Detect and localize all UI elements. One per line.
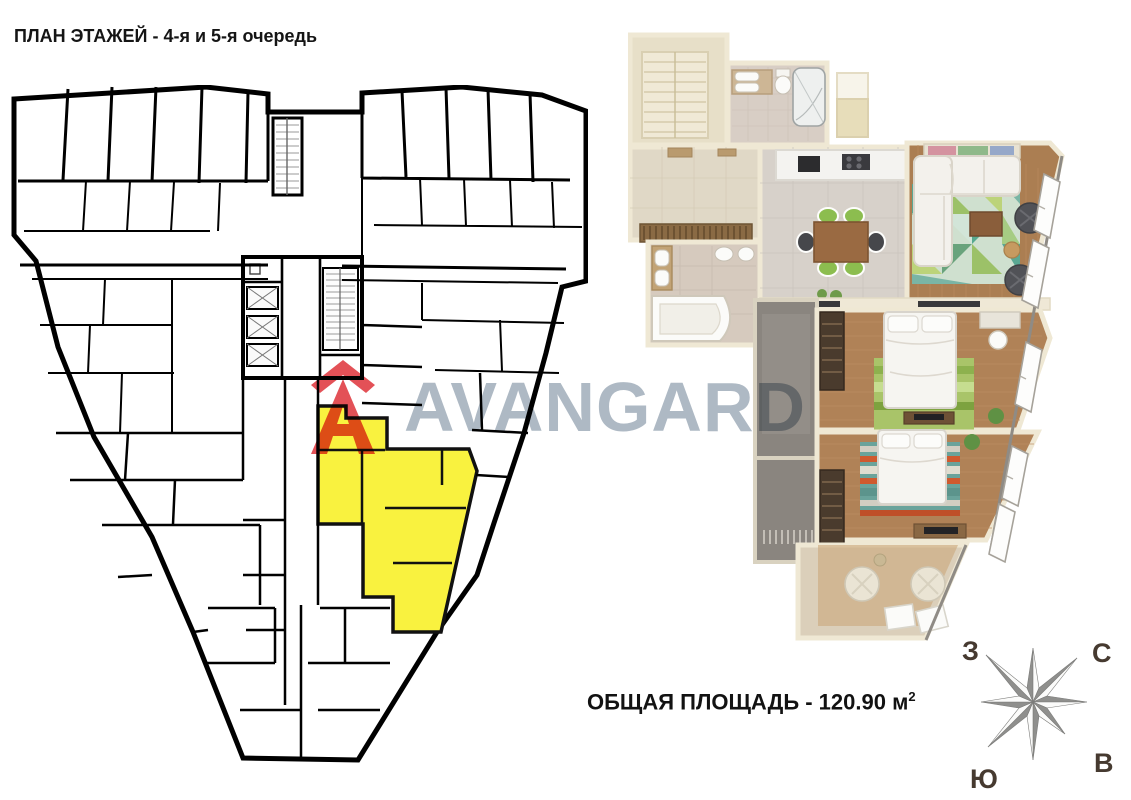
dining-table — [814, 222, 868, 262]
room-terrace — [798, 545, 966, 638]
plant — [964, 434, 980, 450]
small-table — [874, 554, 886, 566]
stair-shaft-top — [273, 118, 302, 195]
room-hallway — [630, 147, 760, 242]
total-area-label: ОБЩАЯ ПЛОЩАДЬ - 120.90 м2 — [587, 689, 916, 715]
seat-white — [885, 604, 916, 630]
pillow — [882, 434, 910, 448]
toilet — [715, 247, 733, 261]
elevator-box — [247, 344, 278, 366]
total-area-sup: 2 — [908, 689, 915, 704]
logo-shape — [311, 360, 375, 454]
compass-north-label: С — [1092, 638, 1112, 668]
room-closet — [630, 35, 727, 145]
compass-west-label: З — [962, 636, 979, 666]
tv — [924, 527, 958, 534]
door-frame — [668, 148, 692, 157]
bidet — [738, 247, 754, 261]
bed-double — [878, 430, 946, 504]
wardrobe-rail — [640, 224, 752, 242]
tv — [914, 414, 944, 420]
wardrobe — [820, 312, 844, 390]
compass-east-label: В — [1094, 748, 1114, 778]
sink — [735, 83, 759, 92]
pillow — [888, 316, 918, 332]
wardrobe — [820, 470, 844, 550]
desk-chair — [989, 331, 1007, 349]
pillow — [922, 316, 952, 332]
compass-south-label: Ю — [970, 764, 998, 794]
compass-star — [981, 648, 1087, 760]
side-table — [1004, 242, 1020, 258]
elevator-box — [247, 287, 278, 309]
pouf — [911, 567, 945, 601]
toilet — [775, 69, 791, 94]
sink-dark — [798, 156, 820, 172]
corner-bathtub — [652, 296, 730, 341]
chair-dark — [867, 232, 885, 252]
shower — [793, 68, 825, 126]
apartment-3d-render — [628, 28, 1094, 642]
page: ПЛАН ЭТАЖЕЙ - 4-я и 5-я очередь — [0, 0, 1131, 800]
sink — [655, 250, 669, 266]
wall-block — [837, 73, 868, 137]
door-frame — [718, 149, 736, 156]
coffee-table — [970, 212, 1002, 236]
bed-double — [884, 312, 956, 408]
plant — [988, 408, 1004, 424]
elevator-box — [247, 316, 278, 338]
avangard-logo — [311, 360, 375, 454]
desk — [980, 312, 1020, 328]
kitchen-counter — [776, 150, 910, 180]
room-kitchen — [760, 147, 910, 305]
sink — [655, 270, 669, 286]
avangard-watermark-text: AVANGARD — [404, 372, 806, 442]
sink — [735, 72, 759, 81]
room-bathroom-bottom — [648, 242, 760, 345]
chair-dark — [797, 232, 815, 252]
cooktop — [842, 154, 870, 170]
compass-rose: З С В Ю — [948, 612, 1120, 794]
pouf — [845, 567, 879, 601]
pillow — [914, 434, 942, 448]
page-title: ПЛАН ЭТАЖЕЙ - 4-я и 5-я очередь — [14, 26, 317, 47]
room-bathroom-top — [728, 63, 827, 145]
tv-niche — [918, 301, 980, 307]
total-area-text: ОБЩАЯ ПЛОЩАДЬ - 120.90 м — [587, 689, 908, 714]
